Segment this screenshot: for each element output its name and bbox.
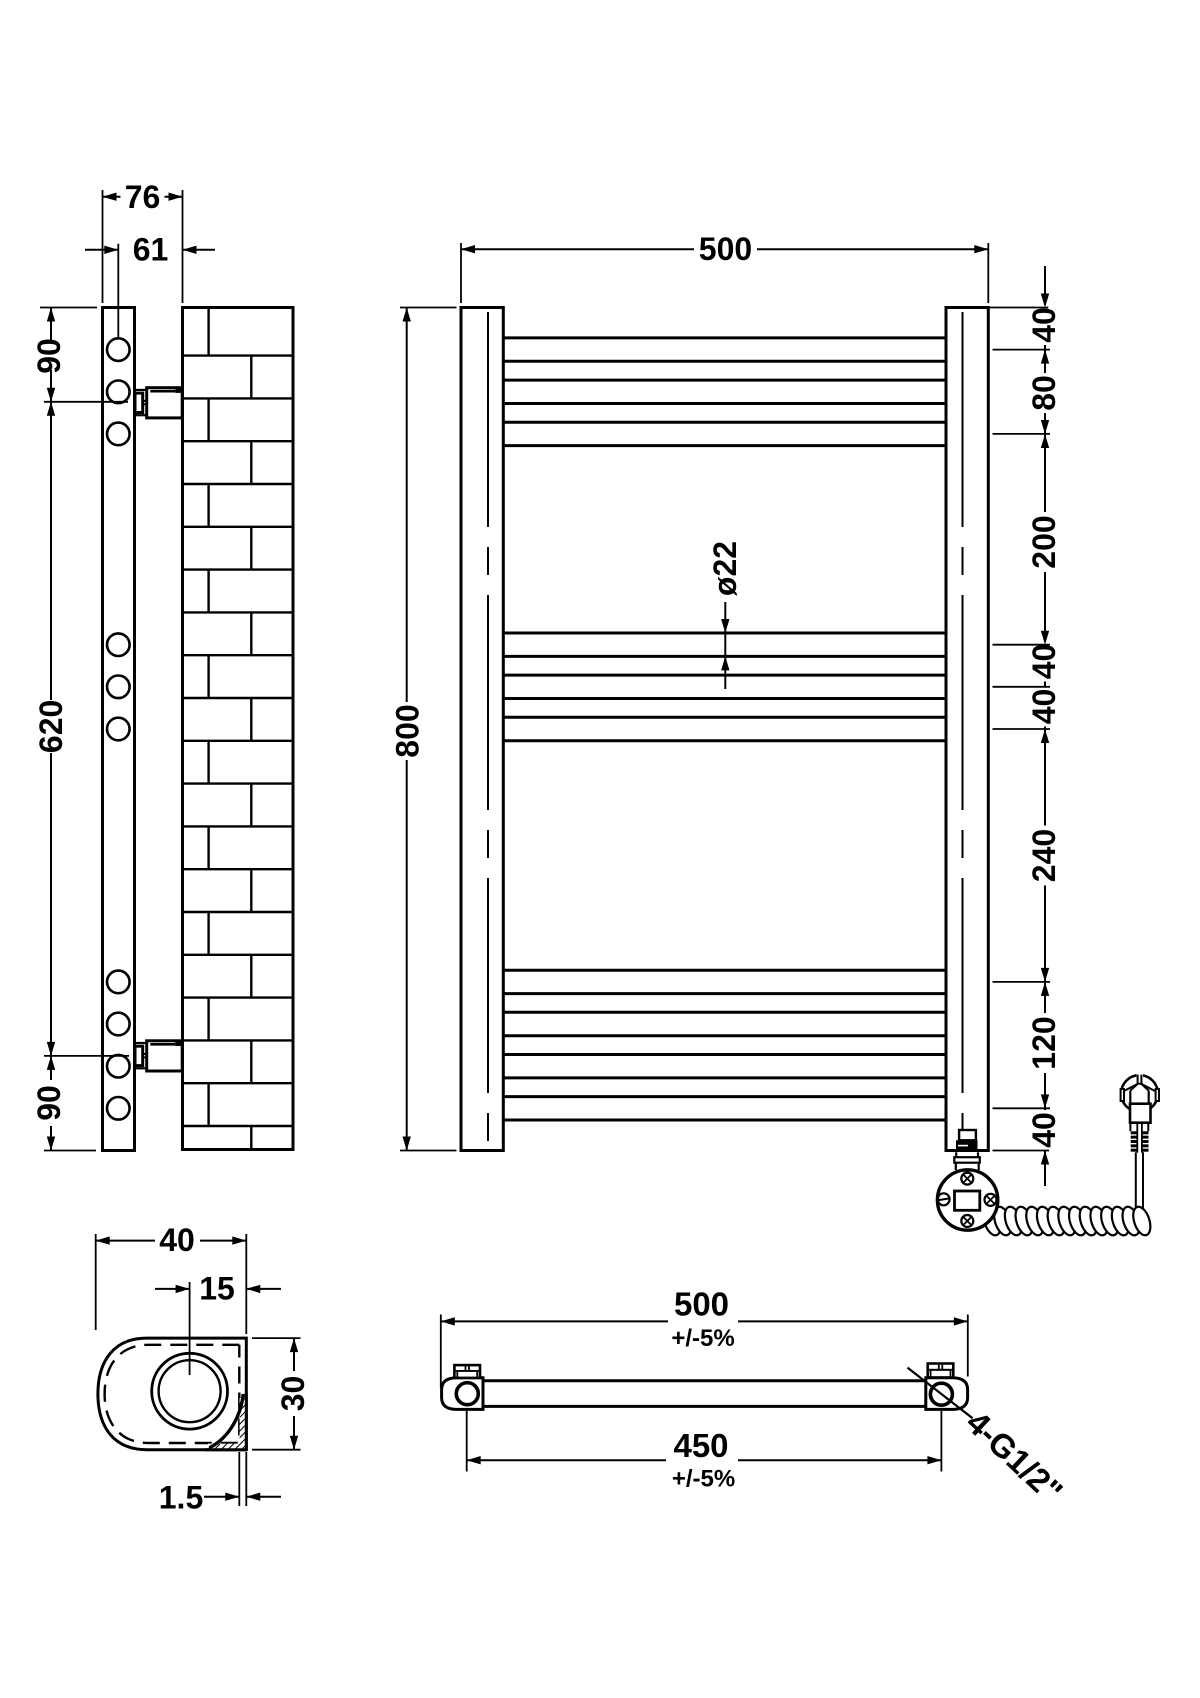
svg-text:1.5: 1.5 — [159, 1480, 203, 1516]
svg-text:80: 80 — [1026, 375, 1062, 411]
svg-text:240: 240 — [1026, 829, 1062, 882]
svg-text:30: 30 — [275, 1376, 311, 1412]
svg-text:15: 15 — [199, 1270, 235, 1306]
svg-text:90: 90 — [31, 338, 67, 374]
svg-text:76: 76 — [125, 179, 161, 215]
svg-text:620: 620 — [33, 700, 69, 753]
svg-text:+/-5%: +/-5% — [672, 1466, 735, 1493]
svg-text:450: 450 — [673, 1427, 728, 1464]
svg-text:120: 120 — [1026, 1016, 1062, 1069]
svg-text:61: 61 — [133, 232, 169, 268]
svg-text:200: 200 — [1026, 515, 1062, 568]
svg-text:40: 40 — [1026, 307, 1062, 343]
svg-text:500: 500 — [699, 231, 752, 267]
svg-text:40: 40 — [1026, 1112, 1062, 1148]
svg-text:500: 500 — [674, 1286, 729, 1323]
svg-text:ø22: ø22 — [707, 541, 743, 596]
svg-text:40: 40 — [1026, 689, 1062, 725]
svg-text:800: 800 — [390, 704, 426, 757]
svg-text:40: 40 — [159, 1222, 195, 1258]
svg-text:90: 90 — [31, 1085, 67, 1121]
svg-text:+/-5%: +/-5% — [671, 1325, 734, 1352]
svg-text:40: 40 — [1026, 644, 1062, 680]
